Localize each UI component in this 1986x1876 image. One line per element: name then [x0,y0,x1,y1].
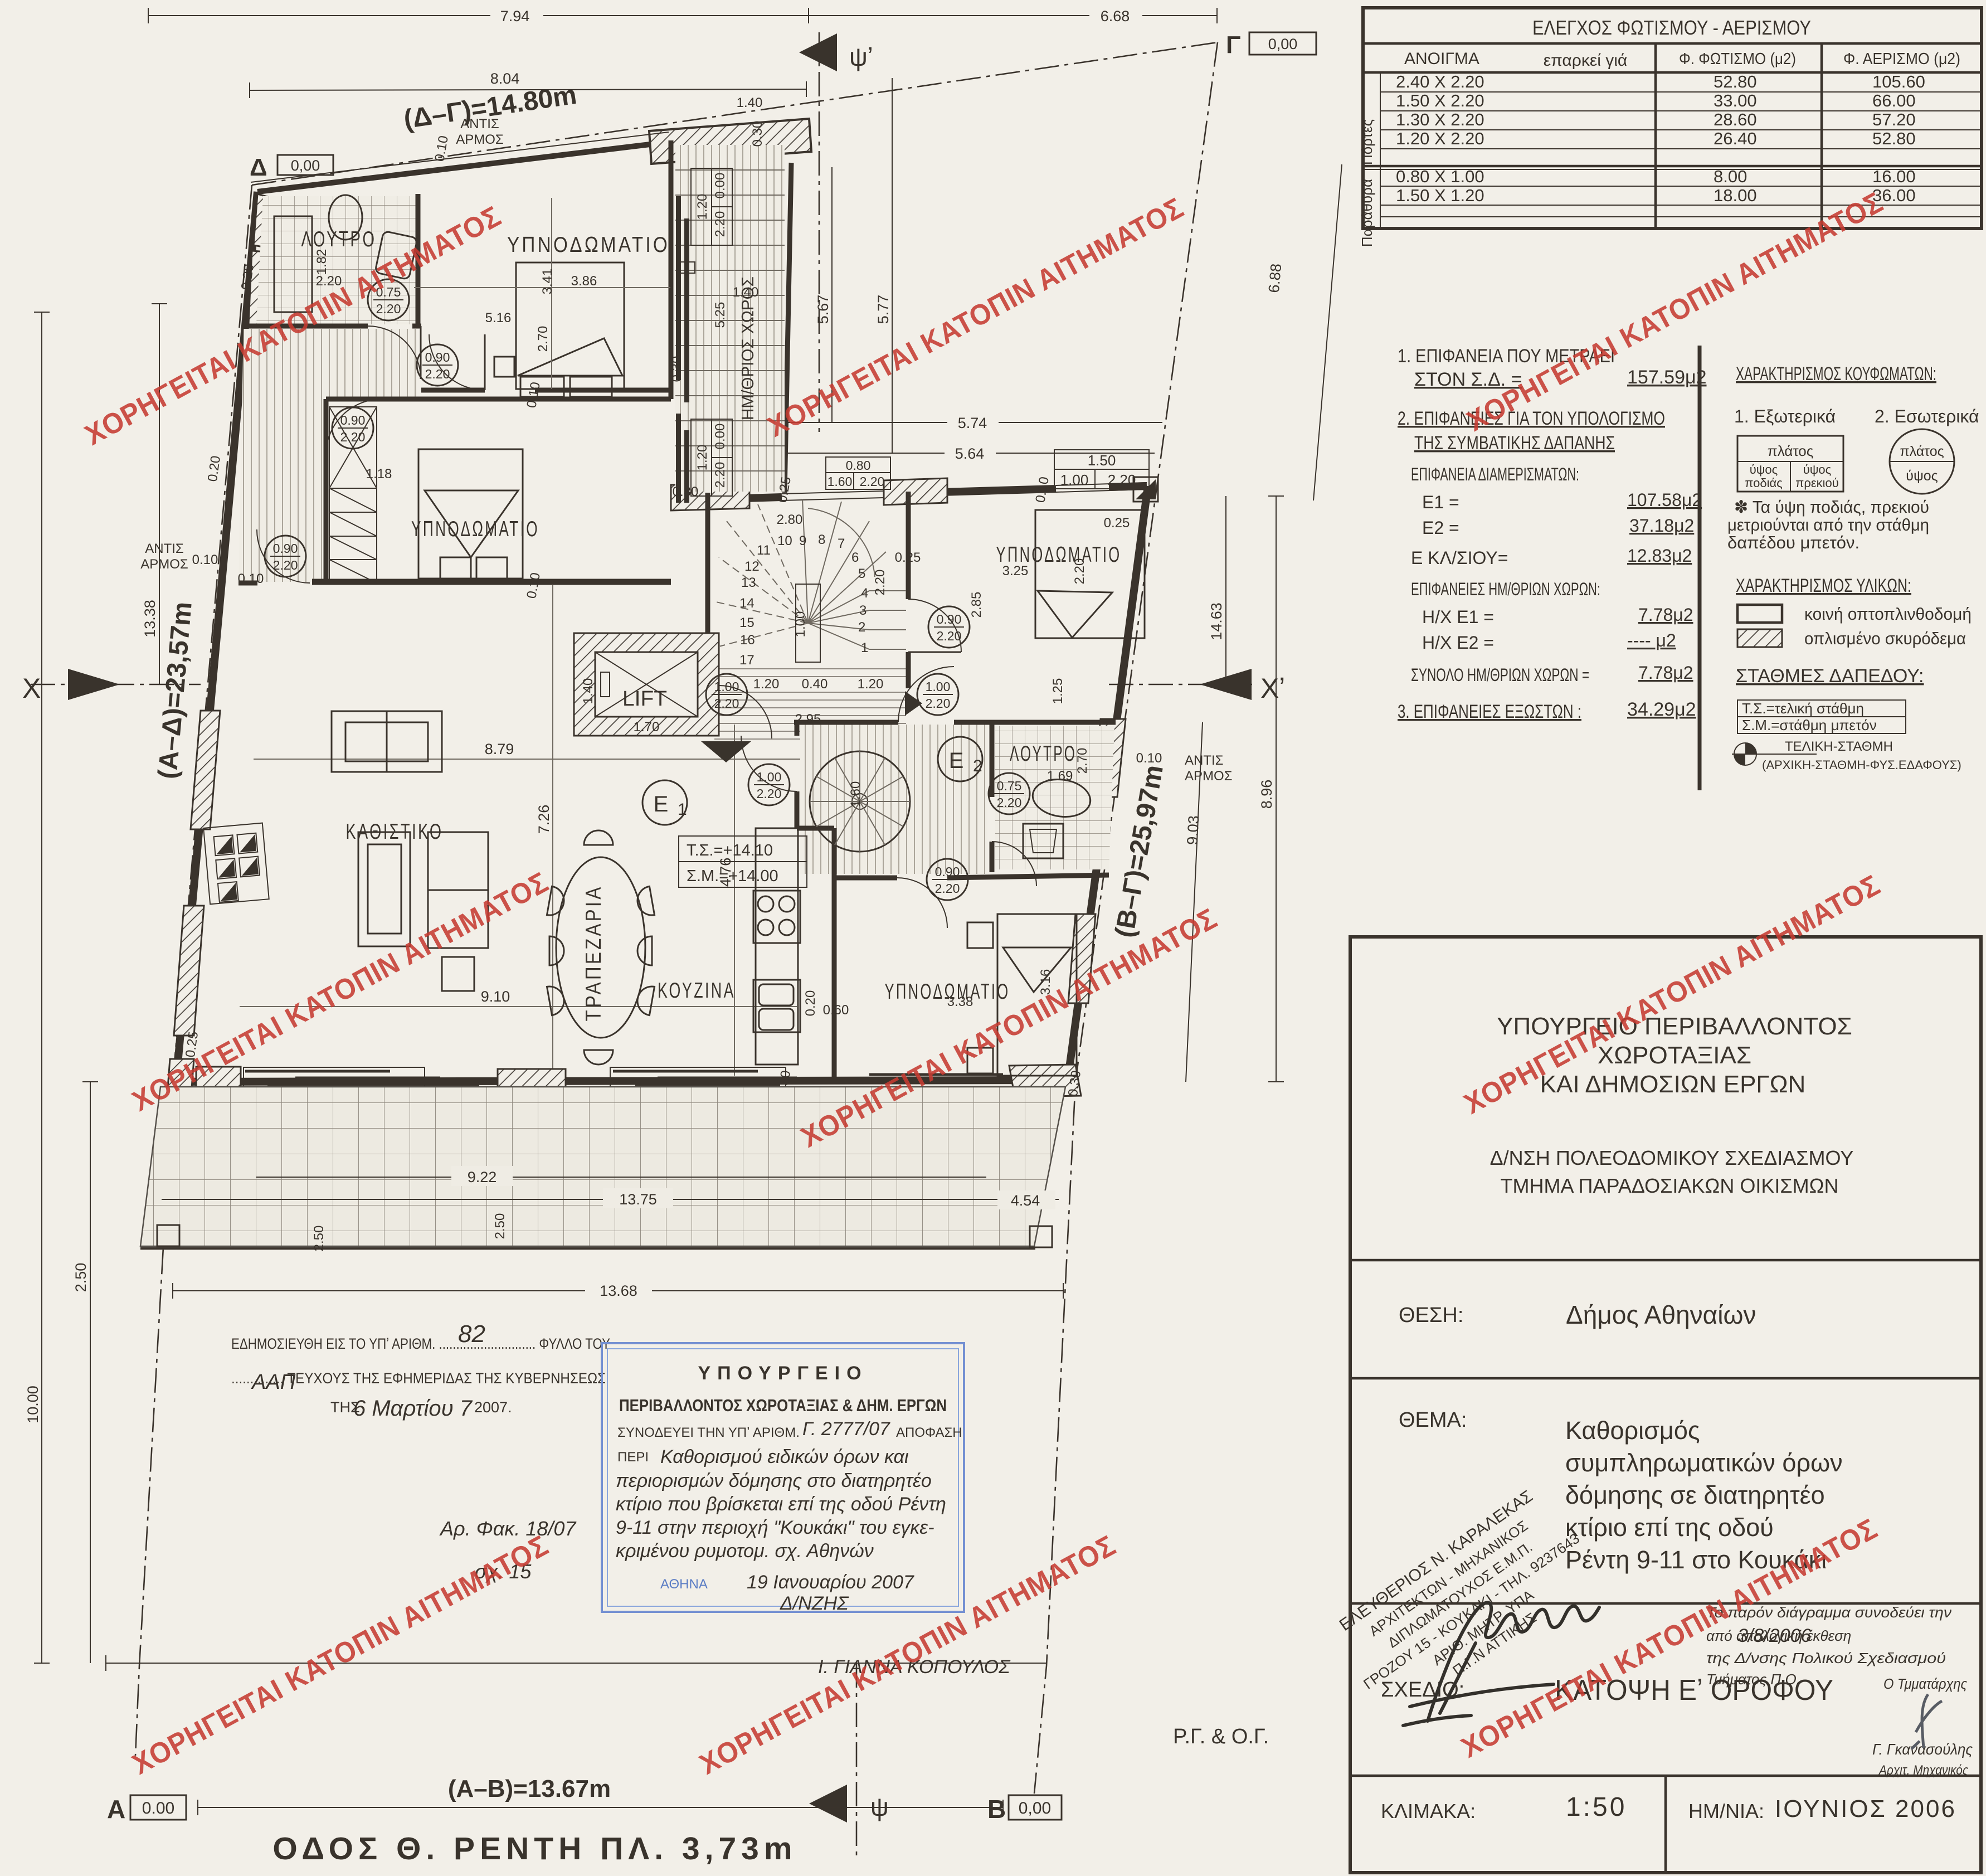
svg-text:8.96: 8.96 [1258,780,1275,809]
svg-text:6.88: 6.88 [1265,263,1284,294]
svg-text:1.50: 1.50 [1088,452,1116,469]
svg-text:26.40: 26.40 [1714,129,1757,148]
svg-text:1.70: 1.70 [634,720,660,735]
svg-text:14.63: 14.63 [1208,602,1225,640]
svg-text:περιορισμών δόμησης στο διατηρ: περιορισμών δόμησης στο διατηρητέο [616,1470,932,1491]
svg-text:1.40: 1.40 [581,678,596,704]
svg-text:ΑΑΠ: ΑΑΠ [251,1370,296,1394]
svg-text:ΧΩΡΟΤΑΞΙΑΣ: ΧΩΡΟΤΑΞΙΑΣ [1598,1042,1751,1069]
svg-text:2.20: 2.20 [376,302,401,316]
svg-text:ΤΕΛΙΚΗ-ΣΤΑΘΜΗ: ΤΕΛΙΚΗ-ΣΤΑΘΜΗ [1785,739,1893,754]
svg-text:1.20: 1.20 [695,194,710,220]
svg-text:ΛΟΥΤΡΟ: ΛΟΥΤΡΟ [301,227,377,251]
svg-text:1.69: 1.69 [1047,769,1073,784]
svg-text:2.50: 2.50 [311,1226,327,1252]
svg-text:1:50: 1:50 [1566,1792,1627,1822]
svg-text:X: X [22,673,41,704]
svg-text:0.10: 0.10 [192,552,218,567]
svg-text:1.20: 1.20 [695,445,710,471]
svg-text:Τ.Σ.=τελική στάθμη: Τ.Σ.=τελική στάθμη [1742,700,1864,717]
svg-text:ΙΟΥΝΙΟΣ 2006: ΙΟΥΝΙΟΣ 2006 [1775,1795,1956,1822]
svg-text:9.10: 9.10 [481,988,510,1005]
svg-text:ΣΥΝΟΔΕΥΕΙ ΤΗΝ ΥΠʼ ΑΡΙΘΜ.: ΣΥΝΟΔΕΥΕΙ ΤΗΝ ΥΠʼ ΑΡΙΘΜ. [617,1425,800,1440]
svg-text:2.20: 2.20 [935,881,960,896]
svg-text:ύψος: ύψος [1750,463,1778,477]
svg-text:0.10: 0.10 [238,571,264,586]
svg-text:7.94: 7.94 [500,8,530,25]
svg-text:57.20: 57.20 [1872,110,1916,129]
svg-text:---- μ2: ---- μ2 [1627,630,1676,650]
svg-text:Η/Χ Ε1 =: Η/Χ Ε1 = [1422,607,1494,627]
svg-text:9: 9 [799,533,806,548]
svg-text:ΑΝΤΙΣ: ΑΝΤΙΣ [460,116,499,132]
svg-text:2.70: 2.70 [536,326,551,352]
svg-text:7.78μ2: 7.78μ2 [1638,663,1693,683]
svg-text:13.75: 13.75 [619,1191,657,1208]
svg-text:7: 7 [838,536,845,551]
svg-text:2. Εσωτερικά: 2. Εσωτερικά [1875,406,1979,426]
svg-text:2.85: 2.85 [969,592,984,618]
svg-text:δαπέδου μπετόν.: δαπέδου μπετόν. [1727,533,1860,552]
svg-text:πλάτος: πλάτος [1768,443,1813,459]
svg-text:Δ/ΝΖΗΣ: Δ/ΝΖΗΣ [780,1593,849,1614]
svg-text:ΧΑΡΑΚΤΗΡΙΣΜΟΣ ΚΟΥΦΩΜΑΤΩΝ:: ΧΑΡΑΚΤΗΡΙΣΜΟΣ ΚΟΥΦΩΜΑΤΩΝ: [1736,363,1936,385]
svg-text:1.00: 1.00 [926,679,951,694]
svg-text:2.20: 2.20 [926,696,951,711]
svg-text:1: 1 [678,800,687,819]
svg-text:κοινή οπτοπλινθοδομή: κοινή οπτοπλινθοδομή [1804,604,1972,624]
svg-text:0.25: 0.25 [1104,516,1130,531]
svg-text:1: 1 [861,640,868,655]
svg-text:2: 2 [973,757,982,775]
svg-text:ΚΟΥΖΙΝΑ: ΚΟΥΖΙΝΑ [658,979,736,1003]
svg-text:Καθορισμός: Καθορισμός [1565,1416,1700,1445]
svg-text:6.68: 6.68 [1101,8,1130,25]
svg-text:0.30: 0.30 [673,484,699,499]
svg-text:Πόρτες: Πόρτες [1359,119,1375,165]
svg-text:Τμήματος Π.Ο.: Τμήματος Π.Ο. [1706,1671,1800,1688]
svg-text:ΤΡΑΠΕΖΑΡΙΑ: ΤΡΑΠΕΖΑΡΙΑ [582,885,606,1022]
svg-text:οπλισμένο σκυρόδεμα: οπλισμένο σκυρόδεμα [1804,629,1966,648]
svg-text:2.20: 2.20 [713,462,728,488]
svg-text:3.41: 3.41 [540,269,555,295]
svg-text:1.60: 1.60 [848,781,863,808]
svg-text:της Δ/νσης Πολικού Σχεδιασμ: της Δ/νσης Πολικού Σχεδιασμού [1706,1650,1946,1666]
svg-text:Ρ.Γ. & Ο.Γ.: Ρ.Γ. & Ο.Γ. [1173,1725,1269,1748]
svg-text:ΑΝΤΙΣ: ΑΝΤΙΣ [145,541,184,556]
svg-text:6 Μαρτίου 7: 6 Μαρτίου 7 [353,1396,473,1421]
svg-text:1. Εξωτερικά: 1. Εξωτερικά [1734,406,1836,426]
svg-text:2.40 X 2.20: 2.40 X 2.20 [1396,72,1484,91]
svg-text:ΕΔΗΜΟΣΙΕΥΘΗ ΕΙΣ ΤΟ ΥΠʼ ΑΡΙΘΜ.: ΕΔΗΜΟΣΙΕΥΘΗ ΕΙΣ ΤΟ ΥΠʼ ΑΡΙΘΜ. ..........… [231,1335,610,1352]
svg-text:2.20: 2.20 [425,367,450,381]
svg-text:2007.: 2007. [474,1399,512,1416]
svg-text:2.20: 2.20 [860,474,885,489]
svg-text:15: 15 [739,615,755,630]
svg-text:ΥΠΝΟΔΩΜΑΤΙΟ: ΥΠΝΟΔΩΜΑΤΙΟ [411,517,539,541]
svg-text:Δ: Δ [250,154,267,181]
svg-text:17: 17 [739,653,755,668]
svg-text:9.22: 9.22 [468,1169,497,1185]
svg-text:0.30: 0.30 [669,356,684,382]
svg-text:2.20: 2.20 [714,696,739,711]
svg-text:1.00: 1.00 [714,679,739,694]
svg-text:Ο Τμματάρχης: Ο Τμματάρχης [1883,1675,1967,1692]
svg-text:1.20: 1.20 [753,677,780,692]
svg-text:2.20: 2.20 [997,795,1022,810]
svg-text:0,00: 0,00 [1268,36,1298,52]
svg-text:0.90: 0.90 [425,350,450,364]
svg-text:1.30 X 2.20: 1.30 X 2.20 [1396,110,1484,129]
svg-text:14: 14 [739,596,755,611]
svg-text:ΠΕΡΙ: ΠΕΡΙ [617,1450,649,1465]
svg-text:18.00: 18.00 [1714,186,1757,205]
svg-text:Δ/ΝΣΗ ΠΟΛΕΟΔΟΜΙΚΟΥ ΣΧΕΔΙΑΣΜΟΥ: Δ/ΝΣΗ ΠΟΛΕΟΔΟΜΙΚΟΥ ΣΧΕΔΙΑΣΜΟΥ [1490,1146,1854,1169]
svg-text:0,00: 0,00 [1019,1799,1051,1817]
svg-text:0.10: 0.10 [1136,751,1162,766]
svg-text:ΤΜΗΜΑ ΠΑΡΑΔΟΣΙΑΚΩΝ ΟΙΚΙΣΜΩΝ: ΤΜΗΜΑ ΠΑΡΑΔΟΣΙΑΚΩΝ ΟΙΚΙΣΜΩΝ [1500,1174,1838,1197]
svg-text:13.68: 13.68 [600,1282,637,1299]
svg-text:0.90: 0.90 [273,541,298,556]
svg-text:ΕΠΙΦΑΝΕΙΑ ΔΙΑΜΕΡΙΣΜΑΤΩΝ:: ΕΠΙΦΑΝΕΙΑ ΔΙΑΜΕΡΙΣΜΑΤΩΝ: [1411,464,1579,484]
svg-text:3/8/2006: 3/8/2006 [1737,1625,1811,1646]
svg-text:0.60: 0.60 [823,1003,849,1018]
svg-text:5.25: 5.25 [713,302,728,328]
svg-text:(ΑΡΧΙΚΗ-ΣΤΑΘΜΗ-ΦΥΣ.ΕΔΑΦΟΥΣ): (ΑΡΧΙΚΗ-ΣΤΑΘΜΗ-ΦΥΣ.ΕΔΑΦΟΥΣ) [1762,758,1961,772]
svg-text:8.00: 8.00 [1714,167,1747,186]
svg-text:Φ. ΦΩΤΙΣΜΟ (μ2): Φ. ΦΩΤΙΣΜΟ (μ2) [1679,50,1796,68]
svg-text:5.77: 5.77 [875,295,892,324]
svg-text:κριμένου ρυμοτομ. σχ. Αθηνών: κριμένου ρυμοτομ. σχ. Αθηνών [616,1540,874,1562]
svg-text:1.20 X 2.20: 1.20 X 2.20 [1396,129,1484,148]
svg-text:Γ. 2777/07: Γ. 2777/07 [802,1418,890,1440]
svg-text:1.18: 1.18 [366,466,392,482]
svg-text:ποδιάς: ποδιάς [1745,476,1783,490]
svg-text:ΣΥΝΟΛΟ ΗΜ/ΘΡΙΩΝ ΧΩΡΩΝ =: ΣΥΝΟΛΟ ΗΜ/ΘΡΙΩΝ ΧΩΡΩΝ = [1411,665,1589,685]
svg-text:0.30: 0.30 [750,121,765,147]
svg-text:37.18μ2: 37.18μ2 [1629,516,1694,536]
svg-text:ΛΟΥΤΡΟ: ΛΟΥΤΡΟ [1010,742,1077,766]
svg-text:2.80: 2.80 [777,512,803,527]
svg-text:ΑΝΤΙΣ: ΑΝΤΙΣ [1185,753,1224,768]
svg-text:2.20: 2.20 [873,570,888,596]
svg-text:3. ΕΠΙΦΑΝΕΙΕΣ ΕΞΩΣΤΩΝ :: 3. ΕΠΙΦΑΝΕΙΕΣ ΕΞΩΣΤΩΝ : [1398,701,1581,722]
svg-text:επαρκεί γιά: επαρκεί γιά [1544,51,1627,70]
svg-text:ΧΑΡΑΚΤΗΡΙΣΜΟΣ ΥΛΙΚΩΝ:: ΧΑΡΑΚΤΗΡΙΣΜΟΣ ΥΛΙΚΩΝ: [1736,575,1911,596]
svg-text:Τ.Σ.=+14.10: Τ.Σ.=+14.10 [687,842,773,859]
svg-text:28.60: 28.60 [1714,110,1757,129]
svg-text:1.00: 1.00 [1060,472,1089,488]
svg-text:1.82: 1.82 [314,249,329,275]
svg-text:Σ.Μ.=στάθμη μπετόν: Σ.Μ.=στάθμη μπετόν [1742,717,1877,733]
svg-text:2.20: 2.20 [937,629,962,643]
svg-text:0.00: 0.00 [713,173,728,199]
svg-text:ΥΠΟΥΡΓΕΙΟ ΠΕΡΙΒΑΛΛΟΝΤΟΣ: ΥΠΟΥΡΓΕΙΟ ΠΕΡΙΒΑΛΛΟΝΤΟΣ [1497,1013,1852,1040]
svg-text:4.54: 4.54 [1011,1192,1040,1209]
svg-text:19 Ιανουαρίου 2007: 19 Ιανουαρίου 2007 [747,1572,914,1593]
svg-text:16.00: 16.00 [1872,167,1916,186]
svg-text:ΚΛΙΜΑΚΑ:: ΚΛΙΜΑΚΑ: [1381,1800,1476,1822]
svg-text:2.20: 2.20 [1108,472,1136,488]
svg-text:ΘΕΣΗ:: ΘΕΣΗ: [1399,1304,1463,1327]
svg-text:8: 8 [818,532,825,547]
svg-text:2.70: 2.70 [1075,748,1090,774]
svg-text:ΑΡΜΟΣ: ΑΡΜΟΣ [456,132,504,147]
svg-text:33.00: 33.00 [1714,91,1757,110]
svg-text:5.16: 5.16 [485,310,512,325]
svg-text:κτίριο επί της οδού: κτίριο επί της οδού [1565,1513,1774,1542]
svg-text:ΕΛΕΓΧΟΣ ΦΩΤΙΣΜΟΥ - ΑΕΡΙΣΜΟΥ: ΕΛΕΓΧΟΣ ΦΩΤΙΣΜΟΥ - ΑΕΡΙΣΜΟΥ [1532,16,1811,39]
svg-text:μετριούνται από την στάθμη: μετριούνται από την στάθμη [1727,515,1929,534]
svg-text:Η/Χ Ε2 =: Η/Χ Ε2 = [1422,633,1494,653]
svg-text:πλάτος: πλάτος [1900,444,1944,459]
svg-text:1.25: 1.25 [1050,678,1065,704]
svg-text:3.25: 3.25 [1002,563,1029,579]
svg-text:1.40: 1.40 [733,285,759,300]
svg-text:5.67: 5.67 [815,295,831,324]
svg-text:δόμησης σε διατηρητέο: δόμησης σε διατηρητέο [1565,1481,1825,1509]
svg-text:Xʼ: Xʼ [1260,673,1285,704]
svg-text:2.20: 2.20 [1072,558,1087,585]
svg-text:0.90: 0.90 [937,612,962,626]
svg-text:9-11 στην περιοχή "Κουκάκι" το: 9-11 στην περιοχή "Κουκάκι" του εγκε- [616,1517,934,1538]
svg-text:2.20: 2.20 [273,558,298,572]
svg-text:66.00: 66.00 [1872,91,1916,110]
svg-text:0.90: 0.90 [935,864,960,879]
svg-text:E2 =: E2 = [1422,518,1459,538]
svg-text:1.00: 1.00 [793,611,808,638]
svg-text:1.40: 1.40 [737,95,763,110]
svg-text:105.60: 105.60 [1872,72,1925,91]
svg-text:ΑΠΟΦΑΣΗ: ΑΠΟΦΑΣΗ [896,1425,962,1440]
svg-text:0.90: 0.90 [340,413,366,427]
svg-text:ΥΠΟΥΡΓΕΙΟ: ΥΠΟΥΡΓΕΙΟ [698,1363,868,1384]
svg-text:1.00: 1.00 [757,770,782,784]
svg-text:1.50 X 2.20: 1.50 X 2.20 [1396,91,1484,110]
svg-text:157.59μ2: 157.59μ2 [1627,367,1707,388]
svg-text:A: A [107,1795,125,1824]
svg-text:52.80: 52.80 [1872,129,1916,148]
svg-text:ΚΑΙ ΔΗΜΟΣΙΩΝ ΕΡΓΩΝ: ΚΑΙ ΔΗΜΟΣΙΩΝ ΕΡΓΩΝ [1540,1071,1806,1098]
svg-text:13: 13 [741,575,756,590]
svg-text:2.20: 2.20 [340,430,366,444]
svg-text:E ΚΛ/ΣΙΟΥ=: E ΚΛ/ΣΙΟΥ= [1411,548,1508,568]
svg-text:Σ.Μ.=+14.00: Σ.Μ.=+14.00 [687,867,778,885]
svg-text:0.80 X 1.00: 0.80 X 1.00 [1396,167,1484,186]
svg-text:3: 3 [859,603,867,618]
svg-text:5: 5 [858,566,865,581]
svg-text:9.03: 9.03 [1184,815,1203,845]
svg-text:Καθορισμού ειδικών όρων και: Καθορισμού ειδικών όρων και [660,1446,909,1467]
svg-text:5.64: 5.64 [955,445,985,462]
svg-text:12.83μ2: 12.83μ2 [1627,546,1692,566]
svg-text:Αρχιτ. Μηχανικός: Αρχιτ. Μηχανικός [1878,1763,1968,1778]
svg-text:16: 16 [740,633,755,648]
svg-text:πρεκιού: πρεκιού [1795,476,1839,490]
svg-text:συμπληρωματικών όρων: συμπληρωματικών όρων [1565,1449,1843,1477]
svg-text:Αρ. Φακ. 18/07: Αρ. Φακ. 18/07 [439,1517,577,1540]
svg-text:Παράθυρα: Παράθυρα [1359,179,1375,247]
svg-text:0.40: 0.40 [802,677,828,692]
svg-text:2.50: 2.50 [72,1263,89,1292]
svg-text:2.95: 2.95 [795,712,821,727]
svg-text:5.74: 5.74 [958,415,987,431]
svg-text:10.00: 10.00 [25,1386,41,1423]
svg-text:ΕΠΙΦΑΝΕΙΕΣ ΗΜ/ΘΡΙΩΝ ΧΩΡΩΝ:: ΕΠΙΦΑΝΕΙΕΣ ΗΜ/ΘΡΙΩΝ ΧΩΡΩΝ: [1411,579,1600,599]
svg-text:ΚΑΘΙΣΤΙΚΟ: ΚΑΘΙΣΤΙΚΟ [346,820,444,844]
svg-text:52.80: 52.80 [1714,72,1757,91]
svg-text:82: 82 [458,1320,485,1348]
svg-text:13.38: 13.38 [142,600,158,638]
svg-text:3.86: 3.86 [571,274,597,289]
svg-text:κτίριο που βρίσκεται επί της ο: κτίριο που βρίσκεται επί της οδού Ρέντη [616,1494,946,1515]
svg-text:ΑΡΜΟΣ: ΑΡΜΟΣ [1185,769,1233,784]
svg-text:ΥΠΝΟΔΩΜΑΤΙΟ: ΥΠΝΟΔΩΜΑΤΙΟ [507,233,670,257]
svg-text:ΟΔΟΣ Θ. ΡΕΝΤΗ ΠΛ. 3,73m: ΟΔΟΣ Θ. ΡΕΝΤΗ ΠΛ. 3,73m [272,1831,797,1867]
svg-text:2.20: 2.20 [757,786,782,801]
svg-text:34.29μ2: 34.29μ2 [1627,699,1696,720]
svg-text:10: 10 [777,533,792,548]
svg-text:12: 12 [744,559,760,574]
svg-text:ΑΘΗΝΑ: ΑΘΗΝΑ [660,1577,708,1592]
svg-text:ΣΤΑΘΜΕΣ ΔΑΠΕΔΟΥ:: ΣΤΑΘΜΕΣ ΔΑΠΕΔΟΥ: [1736,665,1924,687]
svg-text:Γ: Γ [1226,31,1240,59]
svg-text:✽ Τα ύψη ποδιάς, πρεκιού: ✽ Τα ύψη ποδιάς, πρεκιού [1734,497,1929,517]
svg-text:ΤΗΣ ΣΥΜΒΑΤΙΚΗΣ ΔΑΠΑΝΗΣ: ΤΗΣ ΣΥΜΒΑΤΙΚΗΣ ΔΑΠΑΝΗΣ [1414,432,1615,454]
svg-text:0.75: 0.75 [997,779,1022,793]
svg-text:(Α–B)=13.67m: (Α–B)=13.67m [448,1775,611,1802]
svg-text:E: E [949,749,964,773]
svg-text:ΗΜ/ΝΙΑ:: ΗΜ/ΝΙΑ: [1688,1800,1764,1822]
svg-text:11: 11 [757,543,771,558]
svg-text:2.50: 2.50 [493,1213,508,1240]
svg-text:4: 4 [861,586,868,601]
svg-text:0.00: 0.00 [142,1799,174,1817]
svg-text:3.38: 3.38 [947,994,973,1009]
svg-text:0.00: 0.00 [713,424,728,450]
svg-text:7.78μ2: 7.78μ2 [1638,605,1693,625]
svg-text:ψʼ: ψʼ [849,42,873,71]
svg-text:ΘΕΜΑ:: ΘΕΜΑ: [1399,1408,1467,1432]
svg-text:ΑΡΜΟΣ: ΑΡΜΟΣ [140,557,188,572]
svg-text:ΑΝΟΙΓΜΑ: ΑΝΟΙΓΜΑ [1404,50,1479,68]
svg-text:ύψος: ύψος [1906,468,1938,484]
svg-text:Φ. ΑΕΡΙΣΜΟ (μ2): Φ. ΑΕΡΙΣΜΟ (μ2) [1843,50,1960,68]
svg-text:8.04: 8.04 [490,70,520,87]
svg-text:0,00: 0,00 [291,157,320,174]
svg-text:0.25: 0.25 [895,550,921,565]
svg-text:8.79: 8.79 [485,741,514,757]
svg-text:7.26: 7.26 [536,805,552,834]
svg-text:E: E [654,792,669,817]
svg-text:107.58μ2: 107.58μ2 [1627,490,1702,510]
svg-text:2: 2 [858,620,865,635]
svg-text:6: 6 [851,550,859,565]
svg-text:E1 =: E1 = [1422,492,1459,512]
svg-text:ύψος: ύψος [1803,463,1832,477]
svg-text:0.80: 0.80 [846,458,871,473]
svg-text:1.20: 1.20 [858,677,884,692]
svg-text:0.20: 0.20 [803,990,818,1017]
svg-text:ΠΕΡΙΒΑΛΛΟΝΤΟΣ ΧΩΡΟΤΑΞΙΑΣ & ΔΗΜ: ΠΕΡΙΒΑΛΛΟΝΤΟΣ ΧΩΡΟΤΑΞΙΑΣ & ΔΗΜ. ΕΡΓΩΝ [619,1396,947,1415]
svg-text:LIFT: LIFT [622,687,667,711]
svg-text:1.50 X 1.20: 1.50 X 1.20 [1396,186,1484,205]
svg-text:2. ΕΠΙΦΑΝΕΙΕΣ ΓΙΑ ΤΟΝ ΥΠΟΛΟΓΙΣ: 2. ΕΠΙΦΑΝΕΙΕΣ ΓΙΑ ΤΟΝ ΥΠΟΛΟΓΙΣΜΟ [1398,408,1665,429]
svg-text:2.20: 2.20 [713,211,728,237]
svg-text:1.60: 1.60 [827,474,853,489]
svg-text:Δήμος Αθηναίων: Δήμος Αθηναίων [1566,1300,1756,1329]
